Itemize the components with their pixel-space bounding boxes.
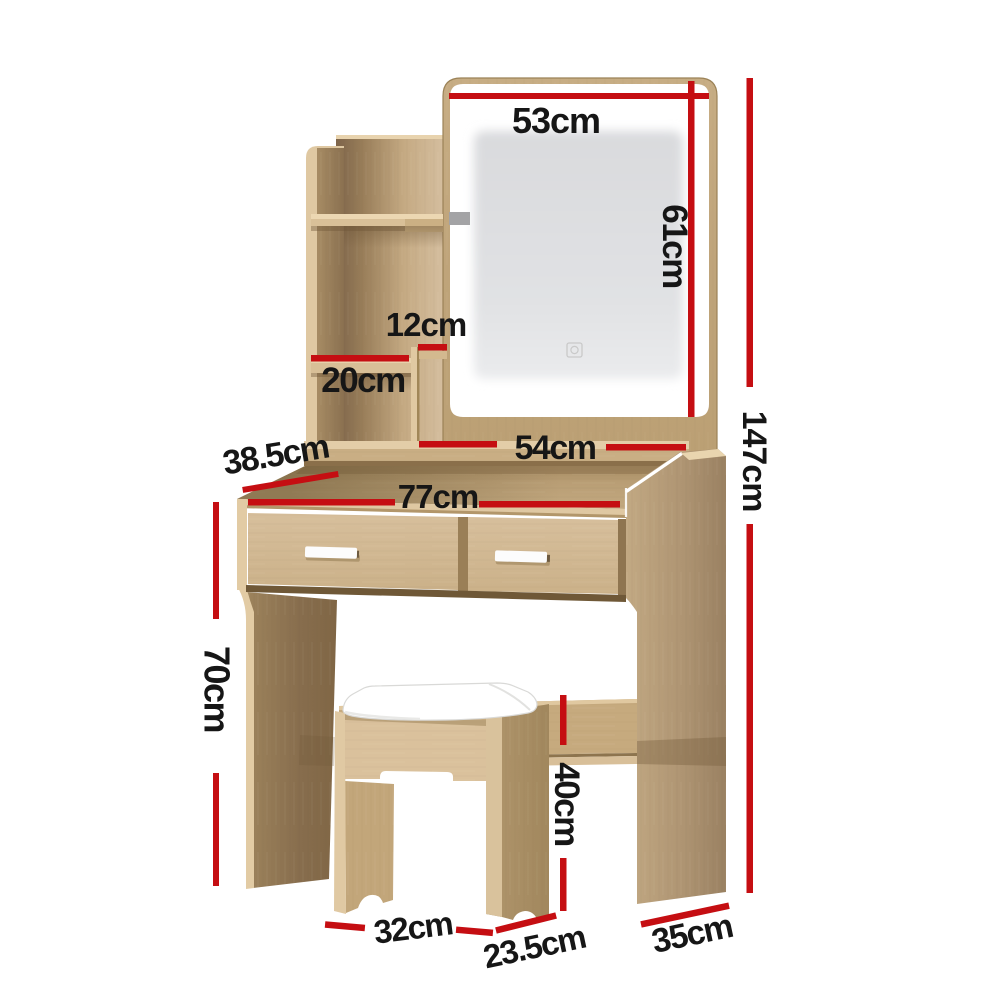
svg-text:32cm: 32cm xyxy=(372,904,454,950)
svg-text:70cm: 70cm xyxy=(196,646,237,732)
svg-text:77cm: 77cm xyxy=(398,478,478,515)
svg-text:20cm: 20cm xyxy=(321,361,405,400)
svg-text:53cm: 53cm xyxy=(512,100,600,141)
svg-text:54cm: 54cm xyxy=(515,429,596,467)
svg-text:23.5cm: 23.5cm xyxy=(480,918,589,976)
svg-text:12cm: 12cm xyxy=(386,306,466,343)
svg-text:40cm: 40cm xyxy=(547,762,586,846)
svg-text:35cm: 35cm xyxy=(648,907,735,961)
svg-text:61cm: 61cm xyxy=(655,204,694,288)
svg-text:147cm: 147cm xyxy=(735,411,773,512)
